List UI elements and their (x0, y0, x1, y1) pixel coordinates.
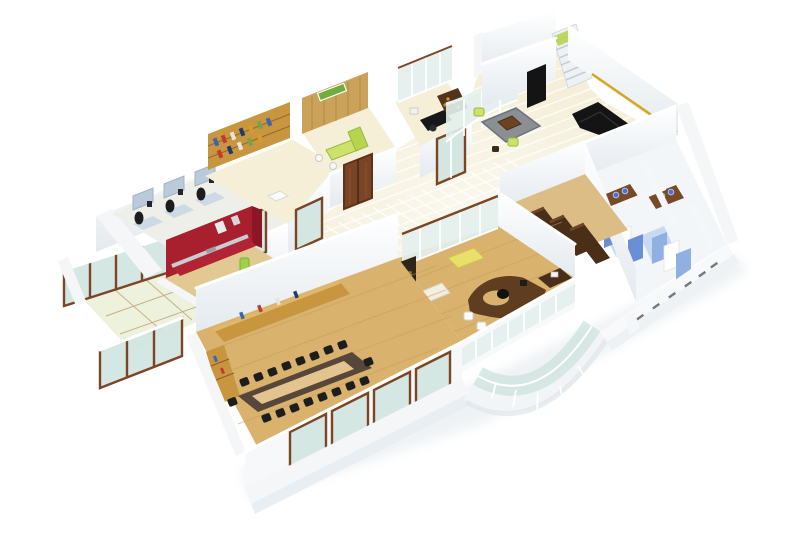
chair (430, 125, 437, 132)
lime-pouf (474, 108, 484, 116)
lime-pouf (508, 138, 518, 146)
exec-chair (497, 289, 509, 299)
floor-plan-render (0, 0, 800, 550)
monitor (520, 280, 527, 286)
white-chair (330, 163, 337, 170)
guest-chair (464, 312, 473, 320)
laptop (551, 272, 558, 277)
printer (410, 108, 418, 114)
white-chair (316, 155, 323, 162)
stool (492, 146, 499, 152)
floor-plan-svg (0, 0, 800, 550)
